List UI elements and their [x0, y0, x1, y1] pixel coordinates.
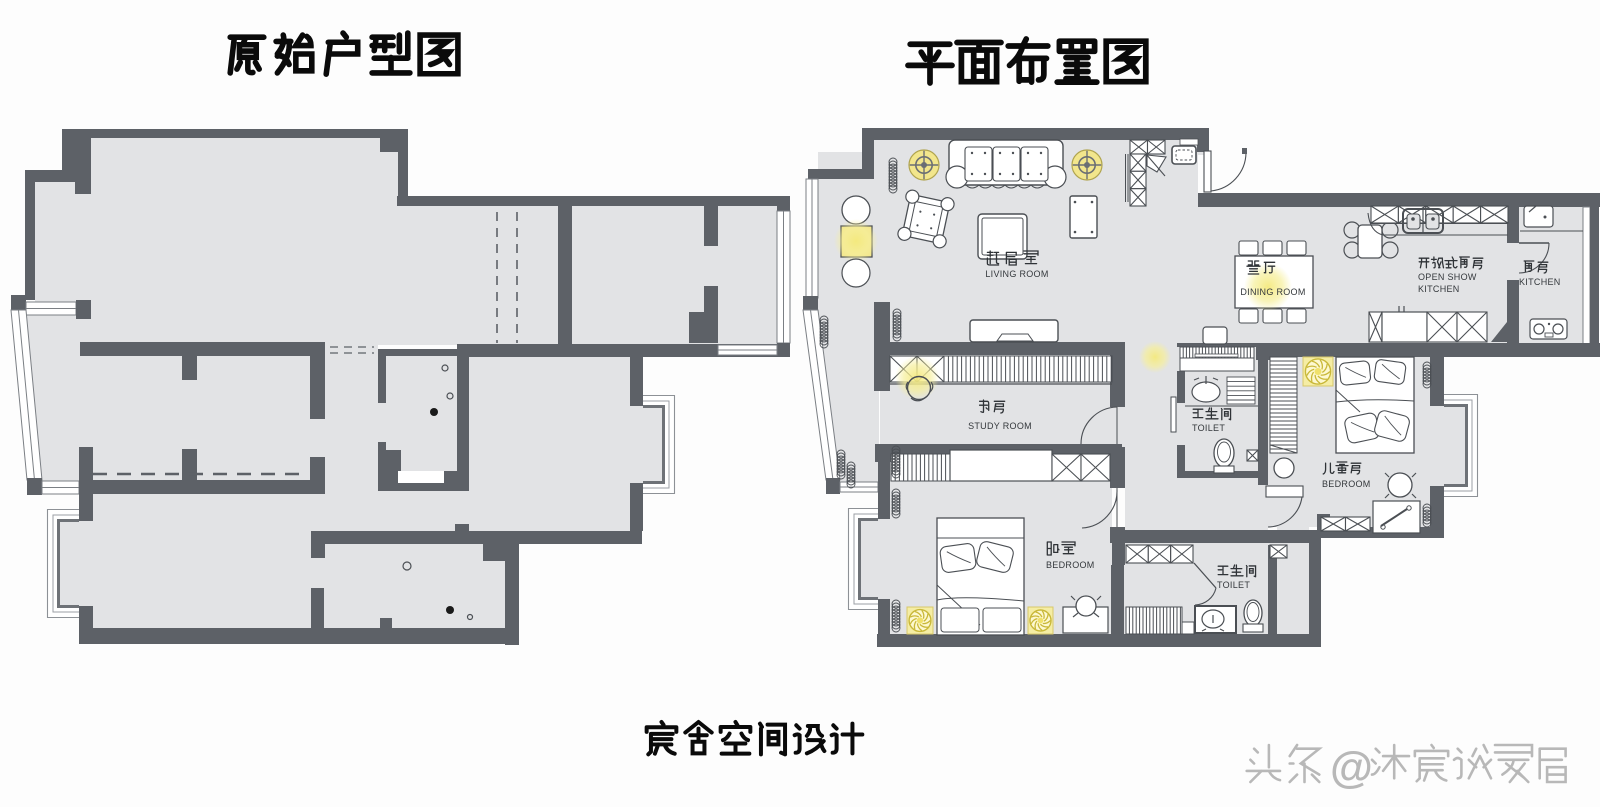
svg-text:STUDY ROOM: STUDY ROOM — [968, 421, 1032, 431]
svg-text:KITCHEN: KITCHEN — [1418, 284, 1460, 294]
svg-text:TOILET: TOILET — [1217, 580, 1250, 590]
svg-text:OPEN SHOW: OPEN SHOW — [1418, 272, 1477, 282]
svg-text:BEDROOM: BEDROOM — [1046, 560, 1095, 570]
svg-text:BEDROOM: BEDROOM — [1322, 479, 1371, 489]
svg-text:KITCHEN: KITCHEN — [1519, 277, 1561, 287]
svg-text:TOILET: TOILET — [1192, 423, 1225, 433]
svg-text:DINING ROOM: DINING ROOM — [1240, 287, 1305, 297]
svg-text:LIVING ROOM: LIVING ROOM — [985, 269, 1048, 279]
svg-text:@: @ — [1330, 743, 1373, 792]
